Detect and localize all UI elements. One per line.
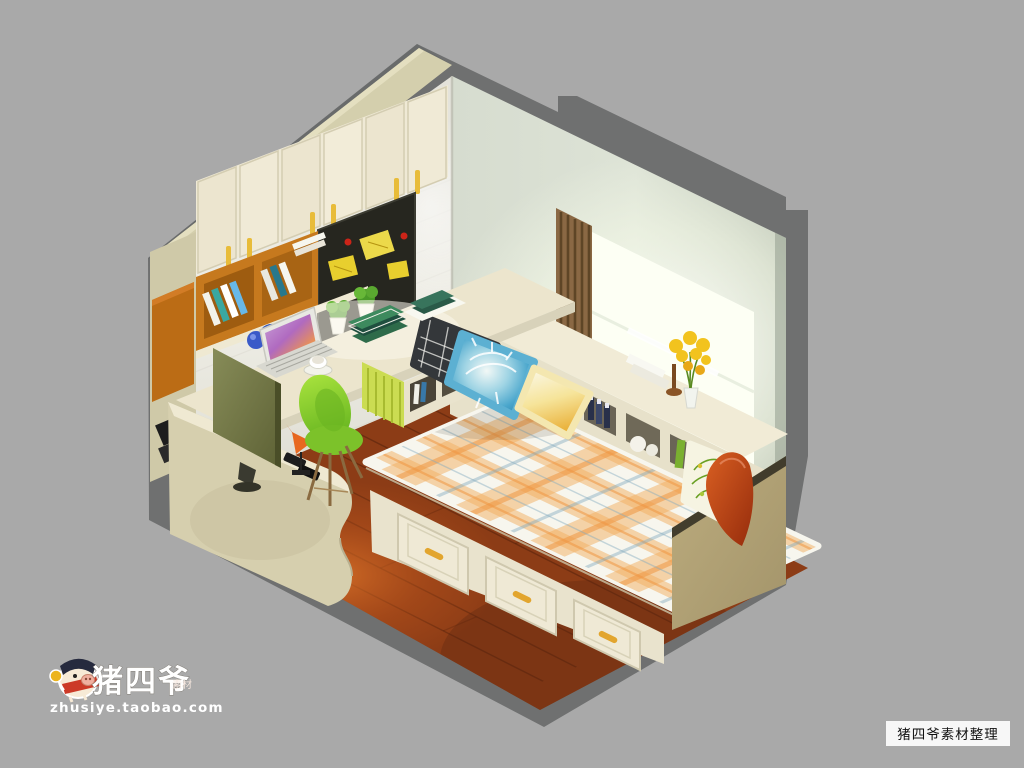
cabinet-door <box>408 87 446 193</box>
magnet <box>345 239 352 246</box>
room-render: 猪四爷 素材 zhusiye.taobao.com 猪四爷素材整理 <box>0 0 1024 768</box>
monitor-base <box>233 482 261 492</box>
candlestick-base <box>666 388 682 396</box>
cabinet-door <box>324 119 362 225</box>
deco-ball <box>646 444 658 456</box>
sticky-note <box>387 260 409 279</box>
magnet <box>401 233 408 240</box>
watermark-corner-tag: 猪四爷素材整理 <box>886 721 1010 746</box>
watermark-brand-sub: 素材 <box>172 678 192 691</box>
isometric-room-screenshot: 猪四爷 素材 zhusiye.taobao.com 猪四爷素材整理 <box>0 0 1024 768</box>
corner-tag-text: 猪四爷素材整理 <box>897 727 999 743</box>
cabinet-door <box>240 151 278 257</box>
monitor-edge <box>275 381 281 468</box>
deco-ball <box>630 436 646 452</box>
candlestick <box>672 364 676 390</box>
watermark-url: zhusiye.taobao.com <box>50 700 224 716</box>
